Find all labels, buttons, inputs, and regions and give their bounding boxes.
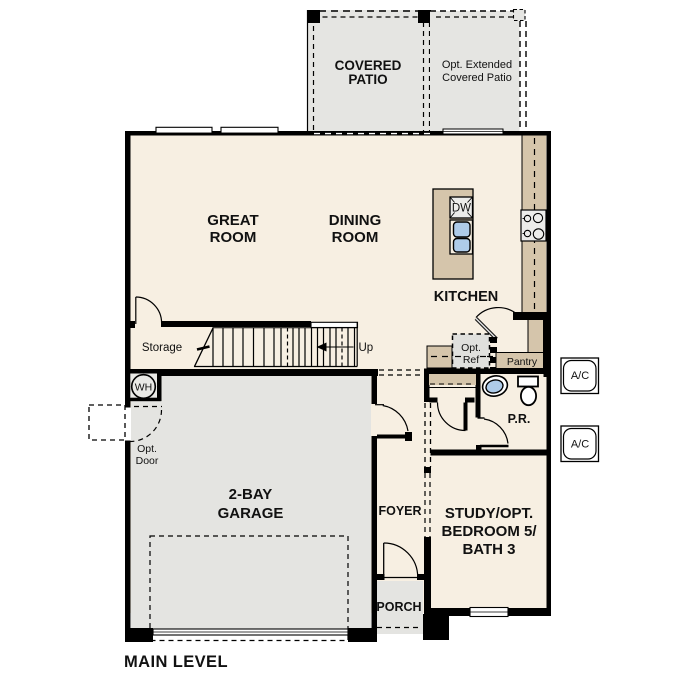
- svg-text:Covered Patio: Covered Patio: [442, 72, 512, 84]
- svg-text:FOYER: FOYER: [378, 504, 421, 518]
- svg-text:2-BAY: 2-BAY: [229, 486, 273, 503]
- svg-text:MAIN LEVEL: MAIN LEVEL: [124, 653, 228, 671]
- svg-text:BEDROOM 5/: BEDROOM 5/: [441, 523, 537, 540]
- svg-text:ROOM: ROOM: [332, 229, 379, 246]
- svg-text:Door: Door: [136, 455, 159, 467]
- svg-text:Storage: Storage: [142, 342, 182, 354]
- svg-text:A/C: A/C: [571, 439, 589, 451]
- svg-text:Up: Up: [359, 342, 374, 354]
- svg-text:PATIO: PATIO: [348, 72, 387, 87]
- svg-text:KITCHEN: KITCHEN: [434, 289, 498, 305]
- svg-text:DINING: DINING: [329, 212, 382, 229]
- svg-text:ROOM: ROOM: [210, 229, 257, 246]
- svg-text:P.R.: P.R.: [508, 412, 531, 426]
- svg-text:GARAGE: GARAGE: [218, 505, 284, 522]
- svg-text:DW: DW: [452, 203, 471, 215]
- svg-text:PORCH: PORCH: [376, 600, 421, 614]
- svg-text:Ref: Ref: [463, 354, 479, 366]
- svg-text:WH: WH: [135, 382, 153, 394]
- svg-text:Opt.: Opt.: [137, 443, 157, 455]
- svg-text:Opt. Extended: Opt. Extended: [442, 59, 512, 71]
- svg-text:Opt.: Opt.: [461, 342, 481, 354]
- svg-text:Pantry: Pantry: [507, 356, 538, 368]
- svg-text:BATH 3: BATH 3: [462, 541, 515, 558]
- svg-text:GREAT: GREAT: [207, 212, 258, 229]
- svg-text:COVERED: COVERED: [335, 58, 402, 73]
- svg-text:A/C: A/C: [571, 370, 589, 382]
- svg-text:STUDY/OPT.: STUDY/OPT.: [445, 505, 533, 522]
